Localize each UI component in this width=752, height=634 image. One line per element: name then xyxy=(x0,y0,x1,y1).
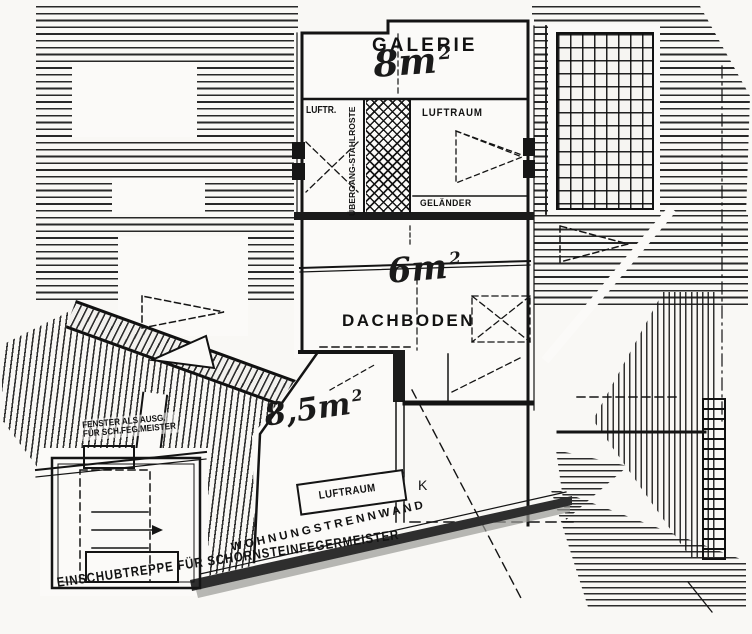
uebergang-stahlroste-label: ÜBERGANG-STAHLROSTE xyxy=(348,100,357,216)
ladder-strip xyxy=(702,398,726,560)
extension-bg xyxy=(394,350,534,410)
skylight-grid xyxy=(556,32,654,210)
luftraum-bottom-label: LUFTRAUM xyxy=(319,483,377,502)
uebergang-crosshatch xyxy=(366,99,410,213)
roof-plane-right-mid xyxy=(532,215,748,307)
gelaender-label: GELÄNDER xyxy=(420,199,472,209)
rooflight-cutout-2 xyxy=(112,178,205,214)
luftraum-right-label: LUFTRAUM xyxy=(422,108,483,120)
k-mark: K xyxy=(418,478,427,493)
galerie-area-annotation: 8m2 xyxy=(372,39,453,86)
rooflight-cutout-1 xyxy=(72,62,197,137)
floor-plan-scan: GALERIE LUFTR. ÜBERGANG-STAHLROSTE LUFTR… xyxy=(0,0,752,634)
dachboden-label: DACHBODEN xyxy=(342,312,475,330)
dachboden-area-annotation: 6m2 xyxy=(386,246,463,292)
rooflight-cutout-3 xyxy=(118,236,248,336)
luftraum-left-label: LUFTR. xyxy=(306,106,336,117)
